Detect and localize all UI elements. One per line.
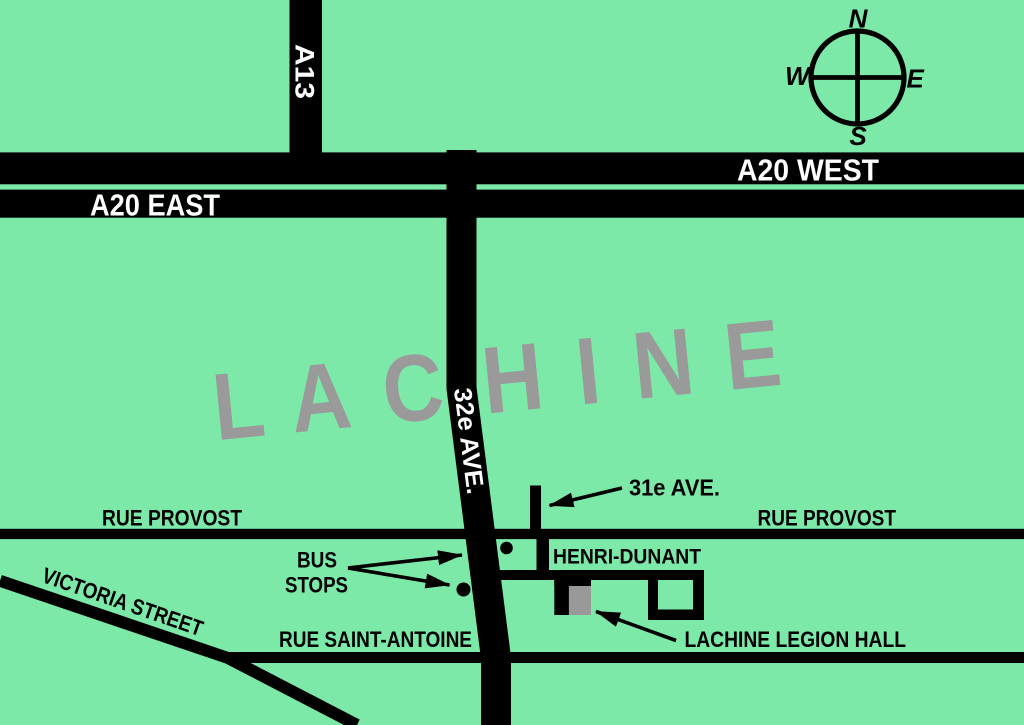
svg-text:LACHINE LEGION HALL: LACHINE LEGION HALL <box>685 627 907 652</box>
svg-text:W: W <box>785 61 812 91</box>
svg-text:E: E <box>907 64 925 94</box>
svg-text:31e AVE.: 31e AVE. <box>629 475 720 501</box>
svg-text:S: S <box>849 121 867 151</box>
svg-text:A20 WEST: A20 WEST <box>737 153 879 188</box>
svg-text:RUE SAINT-ANTOINE: RUE SAINT-ANTOINE <box>279 627 472 652</box>
svg-text:N: N <box>849 4 869 34</box>
svg-text:STOPS: STOPS <box>285 573 348 598</box>
svg-text:RUE PROVOST: RUE PROVOST <box>758 506 897 531</box>
svg-text:HENRI-DUNANT: HENRI-DUNANT <box>553 546 701 569</box>
svg-text:A13: A13 <box>290 44 320 99</box>
svg-text:A20 EAST: A20 EAST <box>90 188 220 223</box>
svg-text:BUS: BUS <box>297 548 337 573</box>
svg-text:RUE PROVOST: RUE PROVOST <box>102 506 242 531</box>
